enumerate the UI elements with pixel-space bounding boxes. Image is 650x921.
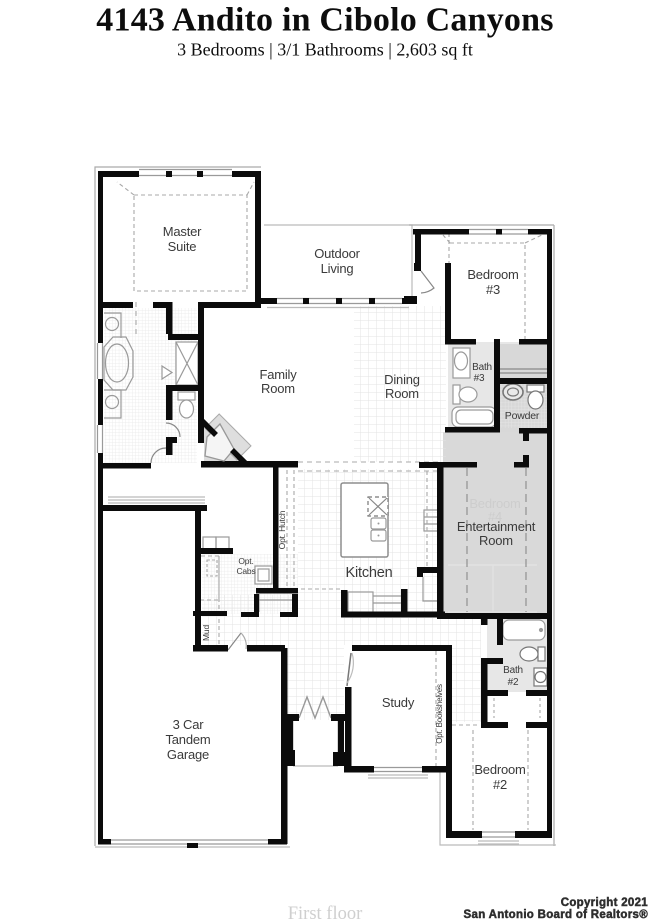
svg-text:#3: #3 [474,373,485,384]
svg-text:Study: Study [382,695,415,710]
svg-text:Bath: Bath [503,665,523,676]
svg-text:Bedroom: Bedroom [467,267,518,282]
svg-text:Tandem: Tandem [165,732,210,747]
svg-text:Suite: Suite [168,239,197,254]
svg-text:Room: Room [385,386,419,401]
svg-text:Bedroom: Bedroom [474,762,525,777]
svg-text:Copyright 2021: Copyright 2021 [561,897,649,909]
svg-text:Family: Family [259,367,297,382]
svg-text:#3: #3 [486,282,500,297]
svg-text:Powder: Powder [505,410,540,422]
svg-text:Opt. Bookshelves: Opt. Bookshelves [435,684,444,744]
svg-text:Dining: Dining [384,372,420,387]
svg-text:Cabs: Cabs [236,566,255,576]
svg-text:Room: Room [261,381,295,396]
svg-text:Room: Room [479,533,513,548]
svg-text:San Antonio Board of Realtors®: San Antonio Board of Realtors® [464,909,649,921]
svg-text:Outdoor: Outdoor [314,246,360,261]
svg-text:Kitchen: Kitchen [346,565,393,581]
svg-text:3 Car: 3 Car [173,717,205,732]
svg-text:Entertainment: Entertainment [457,519,536,534]
svg-text:First floor: First floor [288,904,363,921]
svg-text:Opt.: Opt. [238,556,253,566]
svg-text:Living: Living [321,261,354,276]
svg-text:3 Bedrooms | 3/1 Bathrooms | 2: 3 Bedrooms | 3/1 Bathrooms | 2,603 sq ft [177,40,473,60]
svg-text:4143 Andito in Cibolo Canyons: 4143 Andito in Cibolo Canyons [96,2,553,39]
svg-text:#2: #2 [508,677,519,688]
svg-text:Bath: Bath [472,362,492,373]
svg-text:Mud: Mud [201,625,211,641]
svg-text:Garage: Garage [167,747,209,762]
svg-text:#2: #2 [493,777,507,792]
svg-text:Opt. Hutch: Opt. Hutch [277,510,287,549]
svg-text:Master: Master [163,224,202,239]
